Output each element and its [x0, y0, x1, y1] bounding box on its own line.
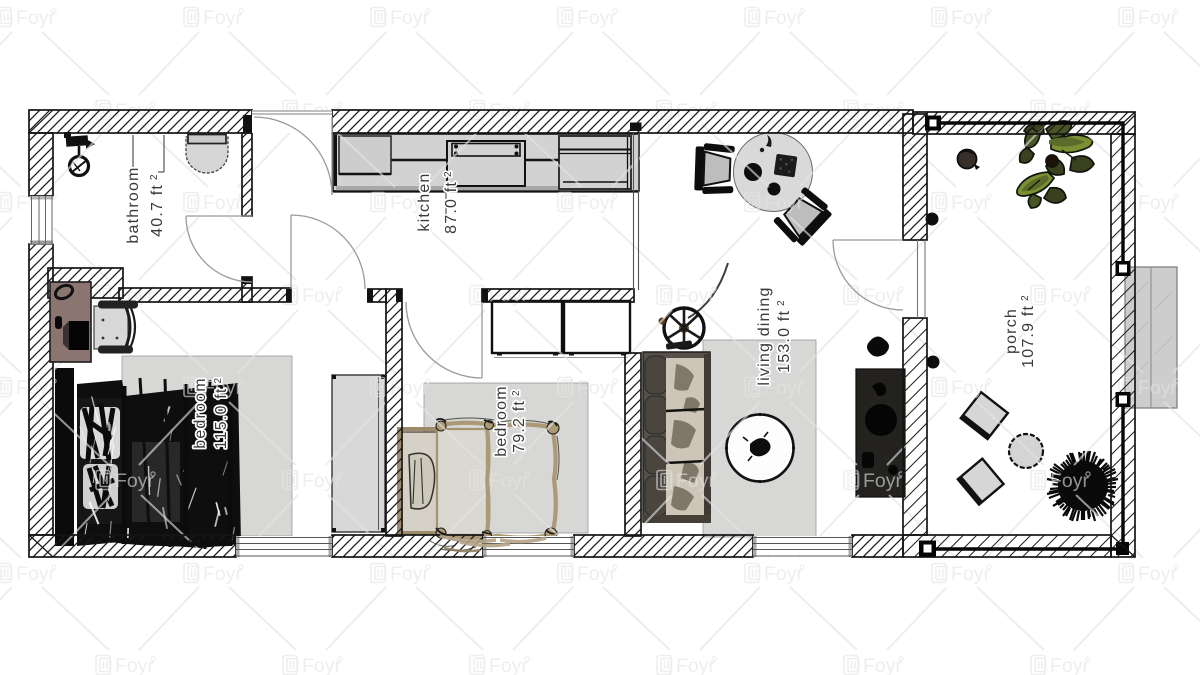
svg-text:bathroom: bathroom [125, 166, 142, 243]
svg-text:kitchen: kitchen [416, 172, 433, 231]
svg-text:107.9 ft 2: 107.9 ft 2 [1020, 294, 1037, 368]
svg-text:bedroom: bedroom [493, 385, 510, 457]
svg-text:153.0 ft 2: 153.0 ft 2 [776, 299, 793, 373]
svg-text:115.0 ft 2: 115.0 ft 2 [213, 377, 230, 450]
svg-text:bedroom: bedroom [192, 377, 209, 449]
svg-text:porch: porch [1003, 308, 1020, 354]
svg-text:living dining: living dining [756, 286, 773, 385]
